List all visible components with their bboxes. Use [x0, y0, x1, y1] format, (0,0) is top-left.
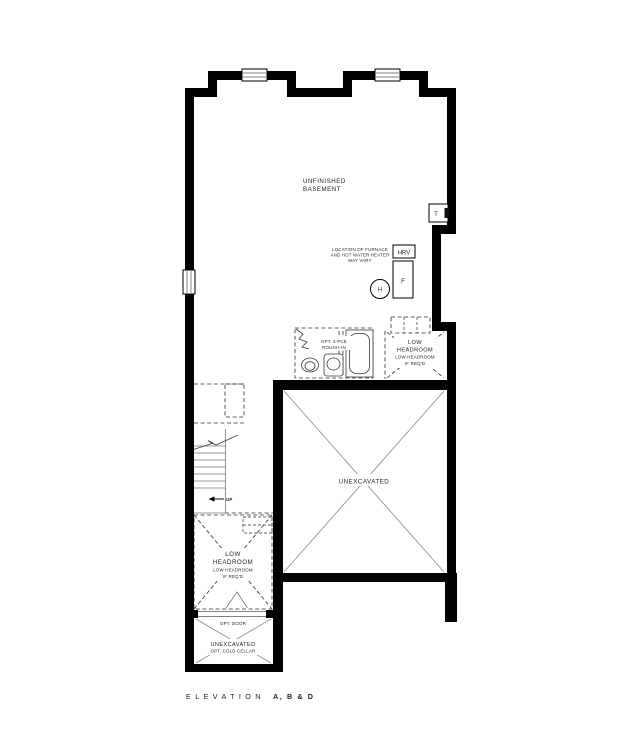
basement-floorplan-drawing: UP OPT. 3-PCE ROUGH-IN LOW HEADR — [0, 0, 640, 741]
furnace-note-1: LOCATION OF FURNACE — [332, 247, 388, 252]
furnace-note-3: MAY VARY — [348, 258, 371, 263]
up-label: UP — [226, 497, 233, 502]
unexcavated-label: UNEXCAVATED — [339, 479, 390, 486]
furnace-box: F — [393, 261, 413, 298]
hrv-label: HRV — [398, 251, 411, 257]
hot-water-label: H — [378, 288, 382, 294]
hot-water-tank: H — [371, 280, 390, 299]
lh-left-1: LOW — [225, 551, 241, 558]
overhang-dashed-box — [391, 317, 430, 333]
lh-right-3: LOW HEADROOM — [395, 355, 435, 360]
furnace-note-2: AND HOT WATER HEATER — [331, 253, 390, 258]
lh-right-2: HEADROOM — [397, 348, 433, 354]
opt-door-swing — [226, 592, 248, 608]
sink-fixture — [324, 354, 343, 376]
floorplan-page: UP OPT. 3-PCE ROUGH-IN LOW HEADR — [0, 0, 640, 741]
cold-cellar-label-2: OPT. COLD CELLAR — [211, 649, 256, 654]
rough-in-bath: OPT. 3-PCE ROUGH-IN — [295, 328, 373, 378]
elevation-variants: A, B & D — [273, 692, 315, 701]
hrv-box: HRV — [393, 245, 415, 258]
rough-in-label-1: OPT. 3-PCE — [321, 339, 347, 344]
basement-label-1: UNFINISHED — [303, 178, 346, 185]
lh-left-4: IF REQ'D — [223, 574, 243, 579]
cold-cellar: OPT. DOOR UNEXCAVATED OPT. COLD CELLAR — [196, 612, 271, 664]
mechanical-equipment: UNFINISHED BASEMENT LOCATION OF FURNACE … — [303, 178, 449, 299]
stair-overhead-dashed-lines — [194, 384, 273, 513]
window-left-side — [183, 270, 195, 294]
window-top-right — [375, 69, 400, 81]
cold-cellar-label-1: UNEXCAVATED — [210, 642, 255, 648]
drain-squiggle-line — [296, 329, 309, 349]
foundation-walls — [185, 71, 457, 672]
rough-in-label-2: ROUGH-IN — [322, 345, 346, 350]
lh-right-4: IF REQ'D — [405, 361, 425, 366]
up-arrow — [209, 496, 225, 501]
bulkhead-dashed-box — [243, 517, 272, 533]
basement-label-2: BASEMENT — [303, 186, 341, 193]
thermostat-box: T — [429, 204, 449, 222]
low-headroom-left: LOW HEADROOM LOW HEADROOM IF REQ'D — [194, 515, 272, 609]
lh-left-2: HEADROOM — [213, 559, 253, 566]
toilet-fixture — [302, 358, 319, 372]
window-top-left — [242, 69, 267, 81]
drawing-title: ELEVATION A, B & D — [186, 692, 315, 701]
opt-door-label: OPT. DOOR — [220, 621, 246, 626]
unexcavated-area: UNEXCAVATED — [284, 391, 444, 572]
thermostat-label: T — [434, 212, 438, 218]
staircase: UP — [192, 429, 238, 513]
valve-symbol — [445, 208, 450, 218]
furnace-label: F — [401, 279, 405, 285]
elevation-title: ELEVATION — [186, 692, 265, 701]
stair-break-line — [192, 435, 238, 450]
lh-right-1: LOW — [408, 340, 422, 346]
lh-left-3: LOW HEADROOM — [213, 568, 253, 573]
